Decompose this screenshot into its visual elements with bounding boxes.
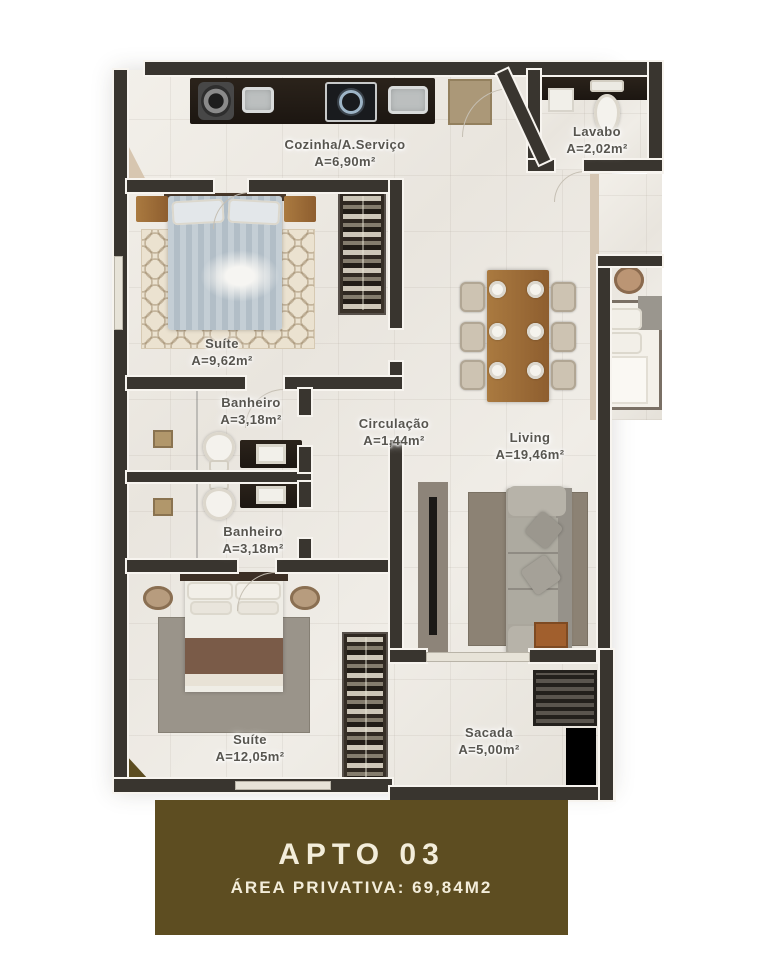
lavabo-toilet-tank	[590, 80, 624, 92]
wall-living-left	[390, 440, 402, 662]
plate-icon	[489, 362, 506, 379]
room-label-suite2: Suíte A=12,05m²	[216, 731, 285, 765]
suite1-nightstand	[284, 196, 316, 222]
shower-icon	[153, 498, 173, 516]
room-label-banheiro1: Banheiro A=3,18m²	[220, 394, 281, 428]
chair-icon	[551, 322, 576, 352]
pouf-icon	[290, 586, 320, 610]
wall-bath1-right-b	[299, 447, 311, 472]
pouf-icon	[614, 266, 644, 294]
room-label-living: Living A=19,46m²	[496, 429, 565, 463]
lavabo-sink-icon	[548, 88, 574, 112]
wall-bath-divider	[127, 472, 311, 482]
wall-bath1-right-a	[299, 389, 311, 415]
kitchen-sink-icon	[242, 87, 274, 113]
neighbor-pillow	[608, 308, 642, 330]
suite1-wardrobe	[340, 193, 384, 313]
plate-icon	[527, 281, 544, 298]
room-area: A=19,46m²	[496, 446, 565, 463]
private-area-text: ÁREA PRIVATIVA: 69,84M2	[231, 878, 493, 898]
room-label-suite1: Suíte A=9,62m²	[191, 335, 252, 369]
chair-icon	[551, 282, 576, 312]
vanity	[240, 482, 302, 508]
wall-neighbor-top	[598, 256, 662, 266]
sliding-door-sacada	[426, 652, 530, 662]
wall-sacada-right	[600, 650, 613, 800]
suite2-pillow	[187, 582, 233, 600]
vanity-sink-icon	[256, 486, 286, 504]
room-name: Suíte	[205, 335, 239, 352]
vanity-sink-icon	[256, 444, 286, 464]
chair-icon	[551, 360, 576, 390]
wall-lavabo-bottom-b	[584, 160, 662, 171]
suite2-pillow	[190, 601, 232, 615]
suite1-nightstand	[136, 196, 168, 222]
room-area: A=2,02m²	[566, 140, 627, 157]
room-label-lavabo: Lavabo A=2,02m²	[566, 123, 627, 157]
side-table	[534, 622, 568, 648]
room-name: Circulação	[359, 415, 429, 432]
plate-icon	[527, 362, 544, 379]
room-label-banheiro2: Banheiro A=3,18m²	[222, 523, 283, 557]
plate-icon	[489, 281, 506, 298]
wall-top	[145, 62, 662, 75]
grill-icon	[533, 670, 597, 726]
shower-icon	[153, 430, 173, 448]
suite1-duvet-fold	[200, 250, 280, 302]
wall-kitchen-suite-a	[127, 180, 213, 192]
room-label-circulacao: Circulação A=1,44m²	[359, 415, 429, 449]
wall-suite1-bath-b	[285, 377, 402, 389]
room-name: Lavabo	[573, 123, 621, 140]
wall-living-right	[598, 258, 610, 662]
apartment-title: APTO 03	[278, 838, 445, 872]
room-area: A=1,44m²	[363, 432, 424, 449]
suite2-blanket	[185, 638, 283, 674]
room-area: A=3,18m²	[220, 411, 281, 428]
room-name: Suíte	[233, 731, 267, 748]
shower-glass	[196, 389, 198, 472]
sacada-counter	[566, 728, 596, 796]
pouf-icon	[143, 586, 173, 610]
wall-suite1-bath-a	[127, 377, 245, 389]
room-name: Sacada	[465, 724, 513, 741]
suite2-blanket-fold	[185, 674, 283, 686]
wall-living-sacada-a	[390, 650, 426, 662]
suite2-wardrobe	[344, 634, 386, 782]
room-area: A=9,62m²	[191, 352, 252, 369]
room-area: A=3,18m²	[222, 540, 283, 557]
room-name: Banheiro	[223, 523, 283, 540]
wall-bath2-right-a	[299, 482, 311, 507]
window-suite2	[235, 781, 331, 790]
chair-icon	[460, 322, 485, 352]
room-name: Banheiro	[221, 394, 281, 411]
tv-icon	[429, 497, 437, 635]
room-name: Cozinha/A.Serviço	[285, 136, 406, 153]
floorplan-page: Cozinha/A.Serviço A=6,90m² Lavabo A=2,02…	[0, 0, 768, 971]
sofa-armrest	[508, 486, 566, 516]
room-label-cozinha: Cozinha/A.Serviço A=6,90m²	[285, 136, 406, 170]
chair-icon	[460, 282, 485, 312]
neighbor-pillow	[608, 332, 642, 354]
shower-glass	[196, 482, 198, 565]
wall-suite1-right-a	[390, 180, 402, 328]
plate-icon	[527, 323, 544, 340]
chair-icon	[460, 360, 485, 390]
toilet-tank	[209, 460, 229, 472]
wall-left	[114, 70, 127, 792]
apartment-banner: APTO 03 ÁREA PRIVATIVA: 69,84M2	[155, 800, 568, 935]
wall-bath2-suite2-a	[127, 560, 237, 572]
room-area: A=6,90m²	[314, 153, 375, 170]
room-label-sacada: Sacada A=5,00m²	[458, 724, 519, 758]
plate-icon	[489, 323, 506, 340]
wall-bath2-suite2-b	[277, 560, 402, 572]
room-area: A=5,00m²	[458, 741, 519, 758]
neighbor-blanket	[608, 356, 648, 404]
room-area: A=12,05m²	[216, 748, 285, 765]
cooktop-icon	[325, 82, 377, 122]
vanity	[240, 440, 302, 468]
window-suite1	[114, 256, 123, 330]
wall-lavabo-right	[649, 62, 662, 172]
washer-icon	[198, 82, 234, 120]
wall-kitchen-suite-b	[249, 180, 402, 192]
service-sink-icon	[388, 86, 428, 114]
wall-bottom-sacada	[390, 787, 614, 800]
room-name: Living	[510, 429, 551, 446]
